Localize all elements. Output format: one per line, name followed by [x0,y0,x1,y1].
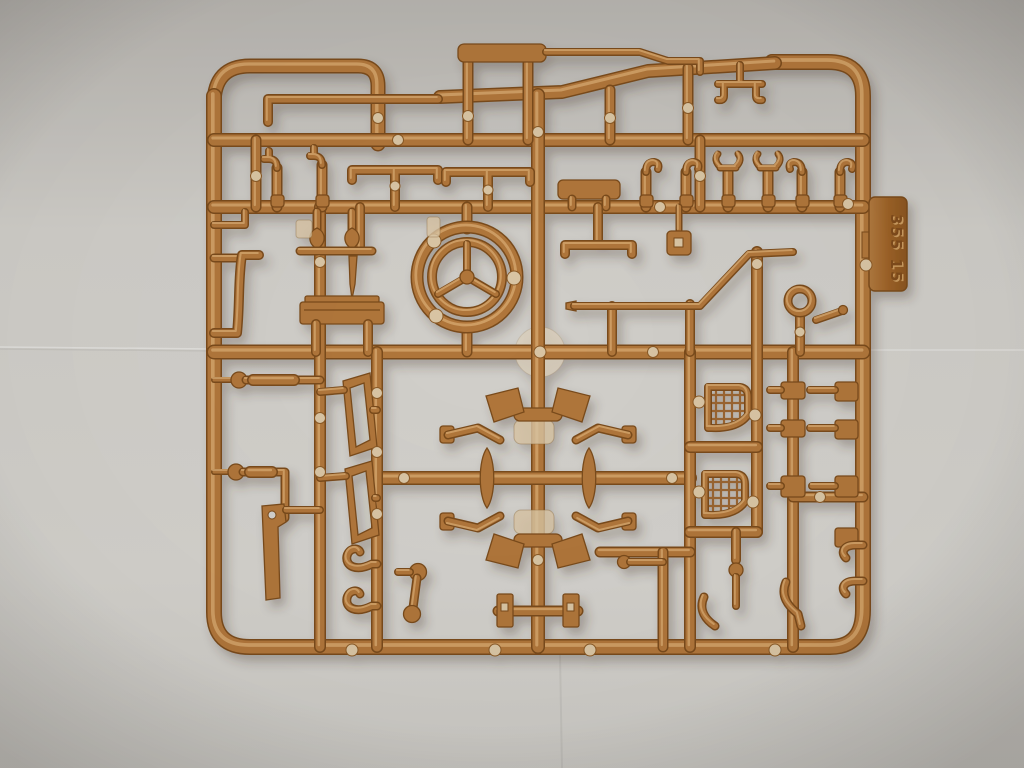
sprue-photo: 355 15 355 15 [0,0,1024,768]
fuel-tank-part [458,44,546,62]
peg-base [271,195,284,207]
strap-hole [268,511,276,519]
gate-stub [693,486,705,498]
cylinder-part [558,180,620,199]
gate-stub [747,496,759,508]
gate-stub [507,271,521,285]
peg-base [722,195,735,207]
peg-base [316,195,329,207]
steering-wheel-part [416,225,521,327]
flash-pad [514,510,554,534]
gate-stub [693,396,705,408]
gate-stub [749,409,761,421]
photo-stage: 355 15 355 15 [0,0,1024,768]
rod-cap [839,306,848,315]
peg-base [796,195,809,207]
flash-pad [514,420,554,444]
peg-base [640,195,653,207]
panel-hole [567,603,574,611]
wheel-hub [460,270,474,284]
washer-hole [674,238,683,247]
gate-stub [860,259,872,271]
gate-stub [429,309,443,323]
peg-base [762,195,775,207]
crank-end [404,606,421,623]
panel-hole [501,603,508,611]
leaf-spring-part [582,448,596,508]
mold-number-text: 355 15 [887,214,905,283]
leaf-spring-part [480,448,494,508]
